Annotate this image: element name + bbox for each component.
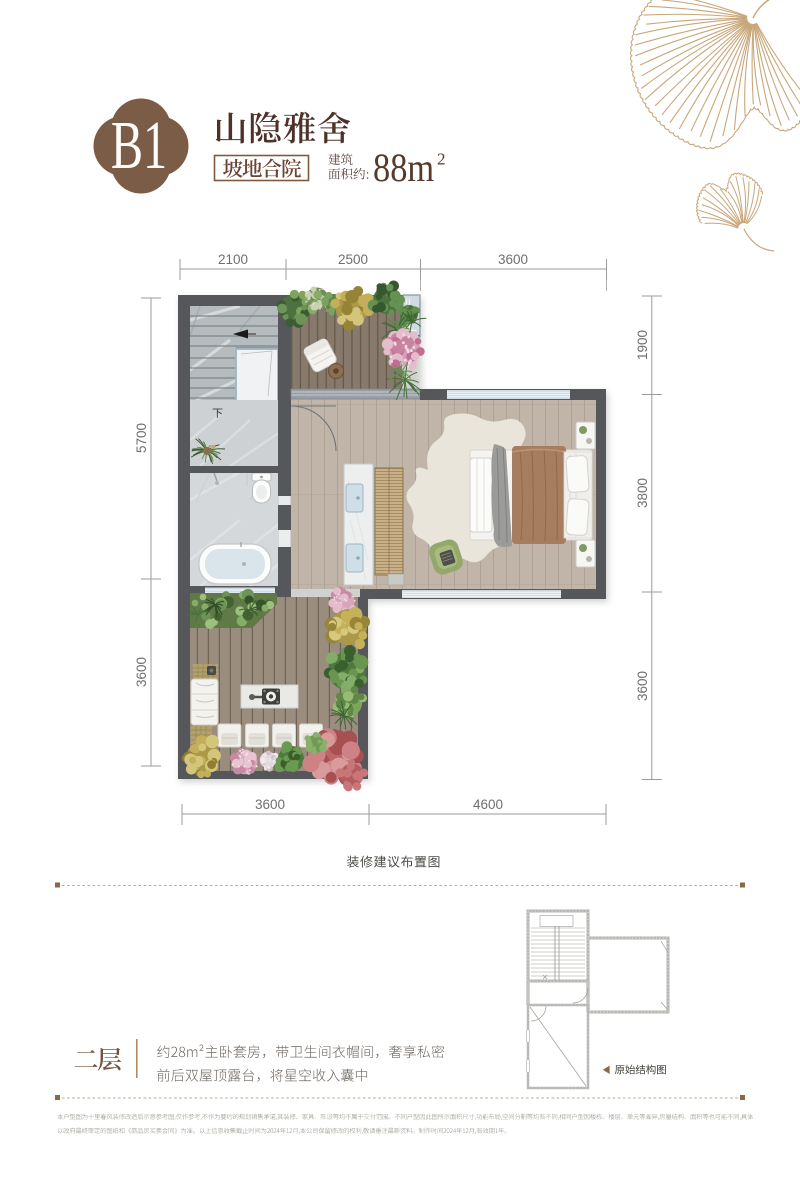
svg-text:5700: 5700	[134, 423, 149, 453]
svg-text:3600: 3600	[498, 252, 528, 267]
svg-text:1900: 1900	[635, 330, 650, 360]
svg-text:B1: B1	[111, 107, 167, 183]
svg-text:3600: 3600	[134, 657, 149, 687]
svg-text:3600: 3600	[635, 671, 650, 701]
svg-text:2: 2	[437, 150, 446, 169]
svg-text:4600: 4600	[473, 797, 503, 812]
svg-text:88m: 88m	[373, 147, 434, 191]
svg-text:3800: 3800	[635, 478, 650, 508]
svg-text:2500: 2500	[338, 252, 368, 267]
svg-text:3600: 3600	[255, 797, 285, 812]
svg-text:2100: 2100	[218, 252, 248, 267]
